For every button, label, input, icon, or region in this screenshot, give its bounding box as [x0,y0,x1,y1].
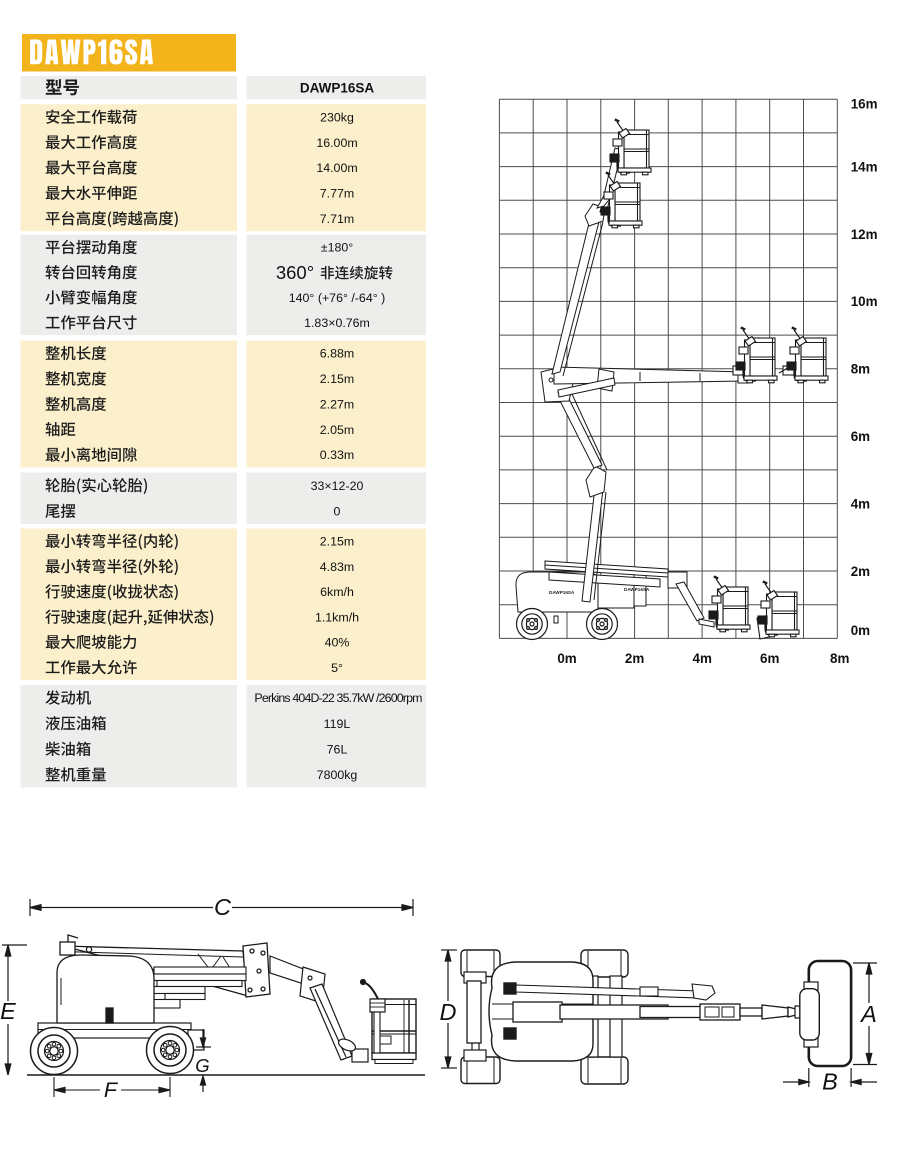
svg-text:40%: 40% [325,636,350,650]
svg-text:6km/h: 6km/h [320,585,354,599]
svg-text:10m: 10m [851,294,878,309]
svg-text:76L: 76L [327,743,348,757]
svg-text:360°: 360° [276,262,314,283]
svg-text:E: E [0,998,16,1024]
svg-text:33×12-20: 33×12-20 [311,479,364,493]
svg-text:DAWP16SA: DAWP16SA [549,590,575,595]
svg-text:±180°: ±180° [321,241,353,255]
svg-text:1.83×0.76m: 1.83×0.76m [304,316,370,330]
svg-text:6.88m: 6.88m [320,347,354,361]
svg-text:2.15m: 2.15m [320,535,354,549]
svg-text:6m: 6m [851,429,870,444]
svg-text:14.00m: 14.00m [316,161,357,175]
svg-text:8m: 8m [851,362,870,377]
svg-text:C: C [214,894,232,920]
svg-text:119L: 119L [324,717,351,731]
svg-text:D: D [440,999,457,1025]
svg-text:12m: 12m [851,227,878,242]
svg-text:6m: 6m [760,651,779,666]
svg-text:DAWP16SA: DAWP16SA [624,587,650,592]
svg-text:F: F [104,1078,119,1102]
svg-text:0.33m: 0.33m [320,448,354,462]
svg-text:2.05m: 2.05m [320,423,354,437]
svg-text:5°: 5° [331,661,343,675]
svg-text:0: 0 [334,505,341,519]
svg-text:0m: 0m [557,651,576,666]
svg-text:16m: 16m [851,97,878,112]
svg-text:2m: 2m [625,651,644,666]
svg-text:G: G [195,1055,209,1076]
svg-text:7.77m: 7.77m [320,187,354,201]
svg-text:B: B [822,1069,838,1095]
svg-text:7800kg: 7800kg [317,768,358,782]
svg-text:230kg: 230kg [320,110,354,124]
svg-text:4m: 4m [851,496,870,511]
svg-text:4.83m: 4.83m [320,560,354,574]
svg-text:A: A [859,1001,877,1027]
svg-text:DAWP16SA: DAWP16SA [300,81,375,96]
svg-text:140° (+76° /-64° ): 140° (+76° /-64° ) [289,291,386,305]
svg-text:0m: 0m [851,623,870,638]
svg-text:7.71m: 7.71m [320,212,354,226]
svg-text:16.00m: 16.00m [316,136,357,150]
svg-text:8m: 8m [830,651,849,666]
svg-text:4m: 4m [693,651,712,666]
svg-text:2m: 2m [851,564,870,579]
svg-text:14m: 14m [851,159,878,174]
svg-text:Perkins 404D-22 35.7kW /2600rp: Perkins 404D-22 35.7kW /2600rpm [254,691,422,705]
svg-text:1.1km/h: 1.1km/h [315,610,359,624]
svg-text:2.27m: 2.27m [320,397,354,411]
svg-text:2.15m: 2.15m [320,372,354,386]
